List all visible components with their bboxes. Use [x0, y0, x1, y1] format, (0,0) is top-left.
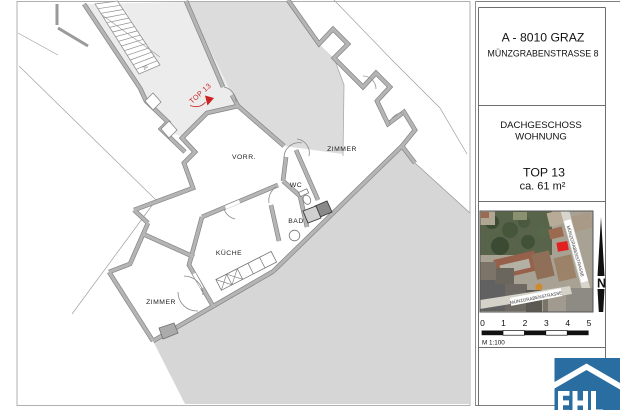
svg-text:WOHNUNG: WOHNUNG: [515, 132, 567, 143]
svg-text:1: 1: [501, 318, 506, 328]
svg-text:0: 0: [480, 318, 485, 328]
svg-text:3: 3: [544, 318, 549, 328]
svg-text:BAD: BAD: [288, 218, 303, 225]
svg-text:M 1:100: M 1:100: [482, 340, 505, 347]
svg-text:ca. 61 m²: ca. 61 m²: [520, 181, 566, 193]
svg-text:VORR.: VORR.: [232, 154, 256, 161]
svg-text:ZIMMER: ZIMMER: [327, 146, 357, 153]
svg-text:ZIMMER: ZIMMER: [146, 299, 176, 306]
svg-text:5: 5: [587, 318, 592, 328]
svg-text:4: 4: [565, 318, 570, 328]
svg-text:WC: WC: [290, 182, 302, 189]
svg-text:TOP 13: TOP 13: [523, 166, 565, 180]
svg-text:N: N: [597, 277, 606, 291]
svg-text:DACHGESCHOSS: DACHGESCHOSS: [500, 120, 582, 131]
svg-text:2: 2: [523, 318, 528, 328]
svg-text:MÜNZGRABENSTRASSE 8: MÜNZGRABENSTRASSE 8: [488, 49, 599, 59]
svg-text:A - 8010 GRAZ: A - 8010 GRAZ: [502, 31, 585, 45]
svg-text:KÜCHE: KÜCHE: [216, 249, 242, 257]
